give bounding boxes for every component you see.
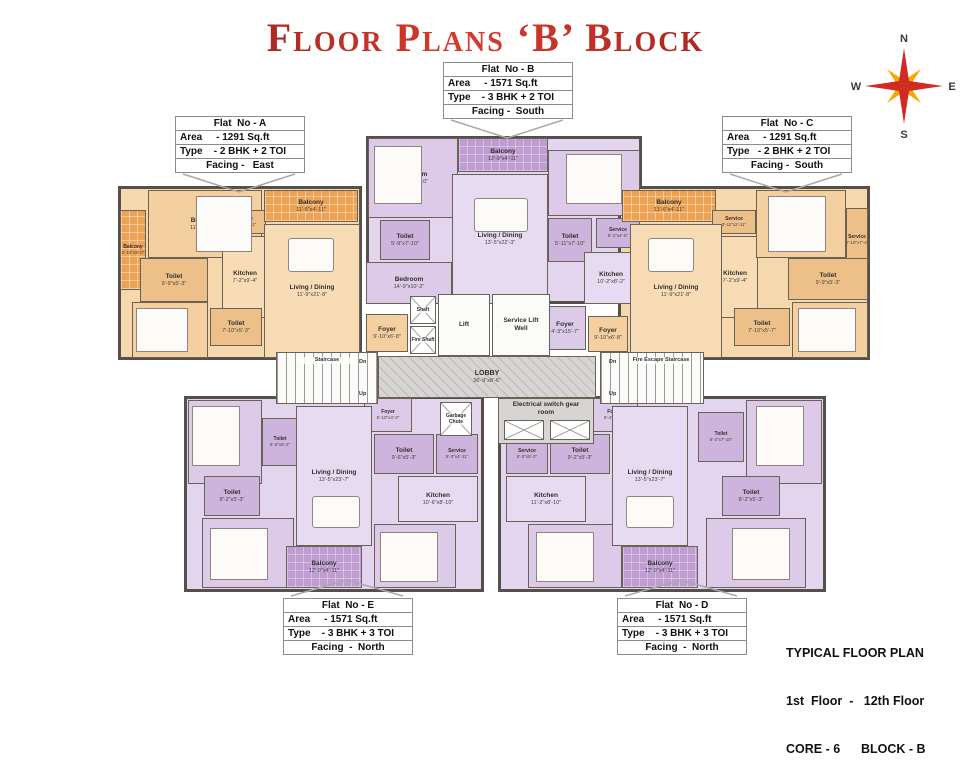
pointer-line: [289, 578, 405, 598]
room-a-balcony: Balcony11'-6"x4'-11": [264, 190, 358, 222]
flat-facing: Facing - North: [284, 641, 412, 654]
furniture-bed: [374, 146, 422, 204]
flat-type: Type - 3 BHK + 2 TOI: [444, 91, 572, 105]
lift: Lift: [438, 294, 490, 356]
compass-label-w: W: [851, 81, 862, 93]
compass-rose: N S E W: [848, 28, 960, 140]
room-dims: 11'-9"x21'-8": [661, 292, 691, 299]
furniture-table: [474, 198, 528, 232]
room-name: Balcony: [311, 560, 336, 568]
flat-info-box-e: Flat No - E Area - 1571 Sq.ft Type - 3 B…: [283, 598, 413, 655]
flat-type: Type - 3 BHK + 3 TOI: [284, 627, 412, 641]
room-e-kitchen: Kitchen10'-6"x8'-10": [398, 476, 478, 522]
furniture-bed: [536, 532, 594, 582]
room-name: Foyer: [378, 326, 396, 334]
electrical-shaft-1: [504, 420, 544, 440]
room-dims: 14'-9"x10'-2": [394, 284, 425, 291]
garbage-chute: Garbage Chute: [440, 402, 472, 436]
footer-line-2: 1st Floor - 12th Floor: [786, 693, 926, 709]
room-dims: 8'-2"x5'-3": [739, 497, 764, 504]
room-e-toilet-1: Toilet9'-6"x5'-3": [374, 434, 434, 474]
up-label: Up: [359, 391, 366, 398]
room-dims: 7'-10"x5'-3": [222, 328, 250, 335]
room-name: Living / Dining: [628, 469, 673, 477]
room-a-toilet-1: Toilet9'-9"x5'-3": [140, 258, 208, 302]
room-dims: 5'-1"x4'-5": [608, 233, 628, 238]
room-d-toilet-3: Toilet8'-2"x5'-3": [722, 476, 780, 516]
room-dims: 12'-9"x4'-11": [309, 568, 339, 575]
room-b-living-dining: Living / Dining13'-5"x22'-3": [452, 174, 548, 304]
lobby-label: LOBBY: [475, 370, 500, 378]
room-dims: 9'-10"x6'-8": [594, 335, 622, 342]
flat-type: Type - 2 BHK + 2 TOI: [723, 145, 851, 159]
flat-name: Flat No - E: [284, 599, 412, 613]
room-name: Living / Dining: [290, 284, 335, 292]
room-dims: 9'-10"x6'-8": [373, 334, 401, 341]
fire-shaft-label: Fire Shaft: [411, 337, 434, 343]
furniture-bed: [136, 308, 188, 352]
pointer-line: [449, 118, 565, 140]
room-dims: 10'-2"x8'-2": [597, 279, 625, 286]
furniture-table: [288, 238, 334, 272]
room-dims: 5'-3"x5'-3": [517, 454, 537, 459]
furniture-bed: [732, 528, 790, 580]
furniture-bed: [798, 308, 856, 352]
room-b-foyer: Foyer4'-3"x15'-7": [544, 306, 586, 350]
room-name: Foyer: [599, 327, 617, 335]
room-name: Kitchen: [599, 271, 623, 279]
room-dims: 5'-3"x8'-2": [270, 442, 290, 447]
room-dims: 3'-11"x2'-11": [722, 222, 747, 227]
furniture-bed: [380, 532, 438, 582]
pointer-line: [181, 172, 297, 194]
lift-label: Lift: [459, 321, 469, 329]
room-dims: 7'-2"x9'-4": [723, 278, 748, 285]
service-lift-label: Service Lift Well: [503, 317, 539, 333]
fire-escape-label: Fire Escape Staircase: [631, 357, 691, 364]
room-dims: 12'-9"x4'-11": [645, 568, 675, 575]
shaft-label: Shaft: [417, 307, 430, 313]
room-name: Balcony: [656, 199, 681, 207]
room-dims: 13'-5"x22'-3": [485, 240, 516, 247]
staircase-left: Staircase Dn Up: [276, 352, 378, 404]
footer-line-1: TYPICAL FLOOR PLAN: [786, 645, 926, 661]
room-name: Toilet: [572, 447, 589, 455]
flat-area: Area - 1291 Sq.ft: [176, 131, 304, 145]
room-dims: 12'-9"x4'-11": [488, 156, 518, 163]
dn-label: Dn: [609, 359, 616, 366]
room-b-balcony: Balcony12'-9"x4'-11": [458, 138, 548, 172]
flat-area: Area - 1291 Sq.ft: [723, 131, 851, 145]
room-name: Toilet: [743, 489, 760, 497]
room-name: Kitchen: [723, 270, 747, 278]
room-dims: 5'-9"x7'-10": [391, 241, 419, 248]
staircase-label: Staircase: [299, 357, 355, 364]
room-e-service: Service5'-3"x4'-11": [436, 434, 478, 474]
pointer-line: [728, 172, 844, 194]
room-dims: 9'-6"x5'-3": [392, 455, 417, 462]
flat-name: Flat No - A: [176, 117, 304, 131]
room-dims: 11'-2"x8'-10": [531, 500, 561, 507]
footer-line-3: CORE - 6 BLOCK - B: [786, 741, 926, 757]
room-name: Toilet: [754, 320, 771, 328]
room-a-foyer: Foyer9'-10"x6'-8": [366, 314, 408, 352]
room-dims: 11'-6"x4'-11": [654, 207, 684, 214]
compass-label-n: N: [900, 33, 908, 45]
room-e-toilet-3: Toilet8'-2"x5'-3": [204, 476, 260, 516]
room-d-kitchen: Kitchen11'-2"x8'-10": [506, 476, 586, 522]
compass-cardinal-points: [865, 48, 943, 124]
room-dims: 9'-9"x5'-3": [162, 281, 187, 288]
room-name: Kitchen: [426, 492, 450, 500]
dn-label: Dn: [359, 359, 366, 366]
room-b-toilet-1: Toilet5'-9"x7'-10": [380, 220, 430, 260]
room-dims: 9'-9"x5'-3": [816, 280, 841, 287]
room-name: Living / Dining: [312, 469, 357, 477]
room-name: Living / Dining: [654, 284, 699, 292]
furniture-table: [626, 496, 674, 528]
service-lift-well: Service Lift Well: [492, 294, 550, 356]
room-dims: 10'-6"x8'-10": [423, 500, 454, 507]
compass-label-s: S: [900, 129, 907, 140]
flat-info-box-b: Flat No - B Area - 1571 Sq.ft Type - 3 B…: [443, 62, 573, 119]
flat-info-box-d: Flat No - D Area - 1571 Sq.ft Type - 3 B…: [617, 598, 747, 655]
furniture-bed: [768, 196, 826, 252]
staircase-right-fire-escape: Fire Escape Staircase Dn Up: [600, 352, 704, 404]
flat-type: Type - 2 BHK + 2 TOI: [176, 145, 304, 159]
flat-area: Area - 1571 Sq.ft: [618, 613, 746, 627]
flat-area: Area - 1571 Sq.ft: [284, 613, 412, 627]
room-dims: 7'-10"x5'-7": [748, 328, 776, 335]
flat-facing: Facing - South: [723, 159, 851, 172]
room-name: Toilet: [228, 320, 245, 328]
furniture-bed: [210, 528, 268, 580]
furniture-bed: [756, 406, 804, 466]
room-name: Toilet: [166, 273, 183, 281]
flat-name: Flat No - C: [723, 117, 851, 131]
flat-type: Type - 3 BHK + 3 TOI: [618, 627, 746, 641]
room-c-foyer: Foyer9'-10"x6'-8": [588, 316, 628, 352]
room-name: Bedroom: [395, 276, 424, 284]
electrical-shaft-2: [550, 420, 590, 440]
room-c-toilet-1: Toilet9'-9"x5'-3": [788, 258, 868, 300]
flat-facing: Facing - East: [176, 159, 304, 172]
room-name: Balcony: [490, 148, 515, 156]
furniture-bed: [196, 196, 252, 252]
room-dims: 6'-10"x4'-3": [377, 415, 400, 420]
lobby-dims: 36'-9"x8'-6": [473, 378, 501, 385]
garbage-chute-label: Garbage Chute: [441, 413, 471, 425]
room-a-toilet-2: Toilet7'-10"x5'-3": [210, 308, 262, 346]
room-dims: 11'-6"x4'-11": [296, 207, 326, 214]
flat-facing: Facing - South: [444, 105, 572, 118]
pointer-line: [623, 578, 739, 598]
shaft: Shaft: [410, 296, 436, 324]
compass-label-e: E: [948, 81, 955, 93]
room-dims: 4'-3"x15'-7": [551, 329, 579, 336]
room-dims: 8'-2"x5'-3": [220, 497, 245, 504]
room-dims: 7'-2"x9'-4": [233, 278, 258, 285]
room-name: Toilet: [396, 447, 413, 455]
furniture-table: [312, 496, 360, 528]
fire-shaft: Fire Shaft: [410, 326, 436, 354]
room-dims: 2'-10"x8'-0": [122, 250, 145, 255]
room-name: Kitchen: [534, 492, 558, 500]
flat-facing: Facing - North: [618, 641, 746, 654]
room-dims: 5'-3"x4'-11": [446, 454, 468, 459]
room-dims: 5'-11"x7'-10": [555, 241, 585, 248]
room-c-toilet-2: Toilet7'-10"x5'-7": [734, 308, 790, 346]
furniture-table: [648, 238, 694, 272]
up-label: Up: [609, 391, 616, 398]
room-dims: 2'-10"x7'-4": [846, 240, 868, 245]
flat-name: Flat No - B: [444, 63, 572, 77]
room-e-toilet-2: Toilet5'-3"x8'-2": [262, 418, 298, 466]
room-name: Balcony: [647, 560, 672, 568]
room-dims: 9'-2"x5'-3": [568, 455, 593, 462]
room-dims: 13'-5"x23'-7": [635, 477, 666, 484]
room-name: Toilet: [820, 272, 837, 280]
flat-area: Area - 1571 Sq.ft: [444, 77, 572, 91]
room-name: Toilet: [397, 233, 414, 241]
room-name: Toilet: [562, 233, 579, 241]
flat-info-box-a: Flat No - A Area - 1291 Sq.ft Type - 2 B…: [175, 116, 305, 173]
lobby: LOBBY36'-9"x8'-6": [378, 356, 596, 398]
room-name: Foyer: [556, 321, 574, 329]
plan-footer: TYPICAL FLOOR PLAN 1st Floor - 12th Floo…: [786, 613, 926, 773]
page-title: Floor Plans ‘B’ Block: [0, 14, 971, 61]
furniture-bed: [192, 406, 240, 466]
room-name: Toilet: [224, 489, 241, 497]
electrical-room-label: Electrical switch gear room: [511, 399, 581, 417]
room-d-toilet-2: Toilet5'-3"x7'-10": [698, 412, 744, 462]
room-name: Kitchen: [233, 270, 257, 278]
room-dims: 5'-3"x7'-10": [710, 437, 733, 442]
flat-name: Flat No - D: [618, 599, 746, 613]
room-name: Living / Dining: [478, 232, 523, 240]
room-c-balcony: Balcony11'-6"x4'-11": [622, 190, 716, 222]
room-dims: 11'-9"x21'-8": [297, 292, 327, 299]
room-dims: 13'-5"x23'-7": [319, 477, 350, 484]
furniture-bed: [566, 154, 622, 204]
flat-info-box-c: Flat No - C Area - 1291 Sq.ft Type - 2 B…: [722, 116, 852, 173]
room-name: Balcony: [298, 199, 323, 207]
